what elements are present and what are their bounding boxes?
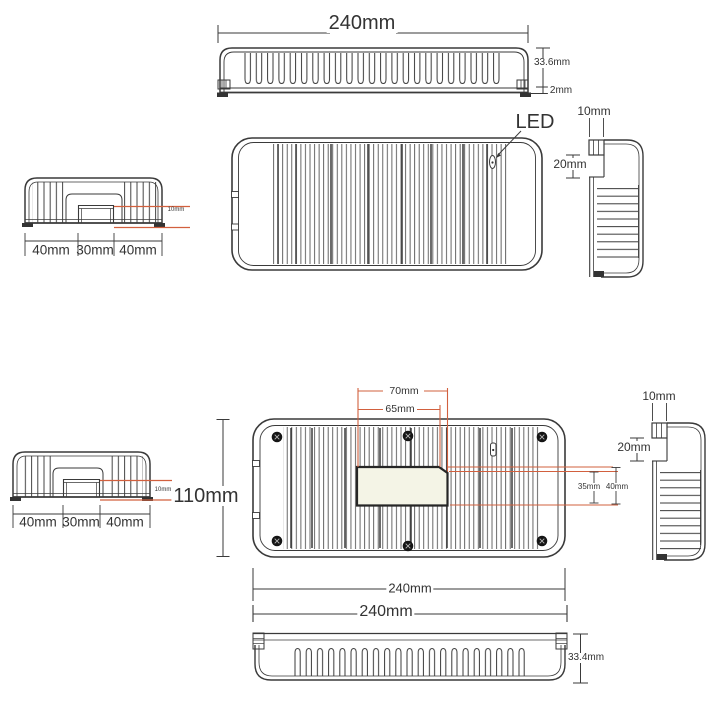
- bottom-end-center-label: 30mm: [62, 515, 100, 529]
- led-indicator: [490, 156, 496, 169]
- bottom-profile-view: [253, 633, 567, 680]
- bottom-profile-height-label: 33.4mm: [566, 653, 606, 663]
- screw: [272, 432, 283, 443]
- top-side-view: [589, 140, 643, 277]
- top-side-step-label: 20mm: [551, 158, 588, 170]
- overall-width-label: 240mm: [357, 604, 414, 620]
- bottom-end-fin-label: 10mm: [155, 487, 172, 493]
- body-height-label: 110mm: [171, 486, 240, 506]
- cutout-outer-width-label: 70mm: [387, 386, 420, 397]
- screw: [272, 536, 283, 547]
- screw: [403, 541, 414, 552]
- dim-bottom-side-tab-10: [653, 403, 667, 421]
- back-width-label: 240mm: [386, 582, 433, 595]
- cutout-inner-height-label: 35mm: [576, 483, 602, 491]
- technical-drawing-canvas: 240mm 33.6mm 2mm LED 10mm 20mm 40mm 30mm…: [0, 0, 727, 719]
- dim-top-side-tab-10: [590, 118, 604, 137]
- bottom-side-view: [652, 423, 705, 560]
- top-side-profile-view: [217, 48, 531, 97]
- top-base-label: 2mm: [548, 86, 574, 96]
- screw: [403, 431, 414, 442]
- bottom-end-right-label: 40mm: [106, 515, 144, 529]
- screw: [537, 536, 548, 547]
- top-end-fin-label: 10mm: [168, 207, 185, 213]
- top-width-label: 240mm: [327, 13, 398, 33]
- top-end-left-label: 40mm: [32, 243, 70, 257]
- top-end-profile-view: [22, 178, 165, 227]
- screw: [537, 432, 548, 443]
- cutout-outer-height-label: 40mm: [604, 483, 630, 491]
- cutout-inner-width-label: 65mm: [383, 404, 416, 415]
- bottom-end-profile-view: [10, 452, 153, 501]
- bottom-side-tab-label: 10mm: [642, 390, 675, 402]
- led-label: LED: [516, 112, 555, 132]
- top-side-tab-label: 10mm: [577, 105, 610, 117]
- cutout-window: [357, 467, 448, 506]
- top-end-center-label: 30mm: [76, 243, 114, 257]
- bottom-end-left-label: 40mm: [19, 515, 57, 529]
- front-face-view: [232, 138, 543, 270]
- top-end-right-label: 40mm: [119, 243, 157, 257]
- bottom-side-step-label: 20mm: [615, 441, 652, 453]
- top-height-label: 33.6mm: [532, 58, 572, 68]
